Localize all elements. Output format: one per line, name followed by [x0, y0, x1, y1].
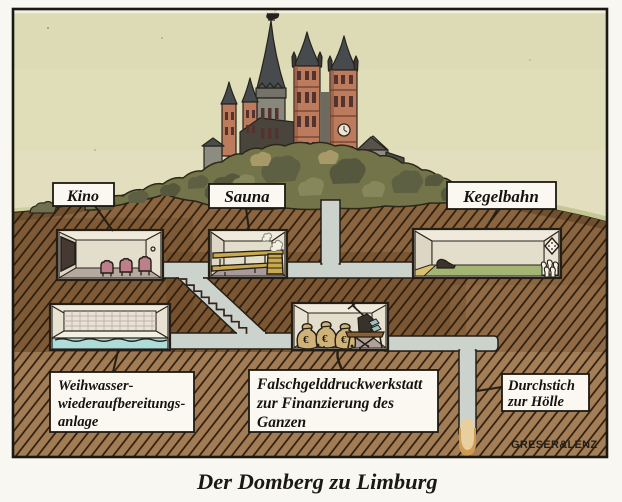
svg-text:€: € [341, 334, 347, 346]
svg-text:€: € [322, 333, 328, 345]
svg-text:Kegelbahn: Kegelbahn [462, 187, 539, 206]
svg-text:€: € [303, 334, 309, 346]
svg-text:Ganzen: Ganzen [257, 414, 306, 431]
svg-text:wiederaufbereitungs-: wiederaufbereitungs- [58, 396, 185, 412]
svg-text:zur Finanzierung des: zur Finanzierung des [256, 395, 394, 412]
svg-text:Weihwasser-: Weihwasser- [58, 378, 134, 394]
svg-text:zur Hölle: zur Hölle [507, 394, 565, 410]
svg-text:GRESER&LENZ: GRESER&LENZ [511, 439, 597, 451]
svg-text:Durchstich: Durchstich [507, 378, 575, 394]
svg-text:Der Domberg zu Limburg: Der Domberg zu Limburg [196, 469, 438, 494]
svg-text:anlage: anlage [58, 414, 99, 430]
svg-text:Sauna: Sauna [224, 187, 270, 206]
svg-text:Falschgelddruckwerkstatt: Falschgelddruckwerkstatt [256, 376, 423, 393]
svg-text:Kino: Kino [66, 188, 99, 205]
